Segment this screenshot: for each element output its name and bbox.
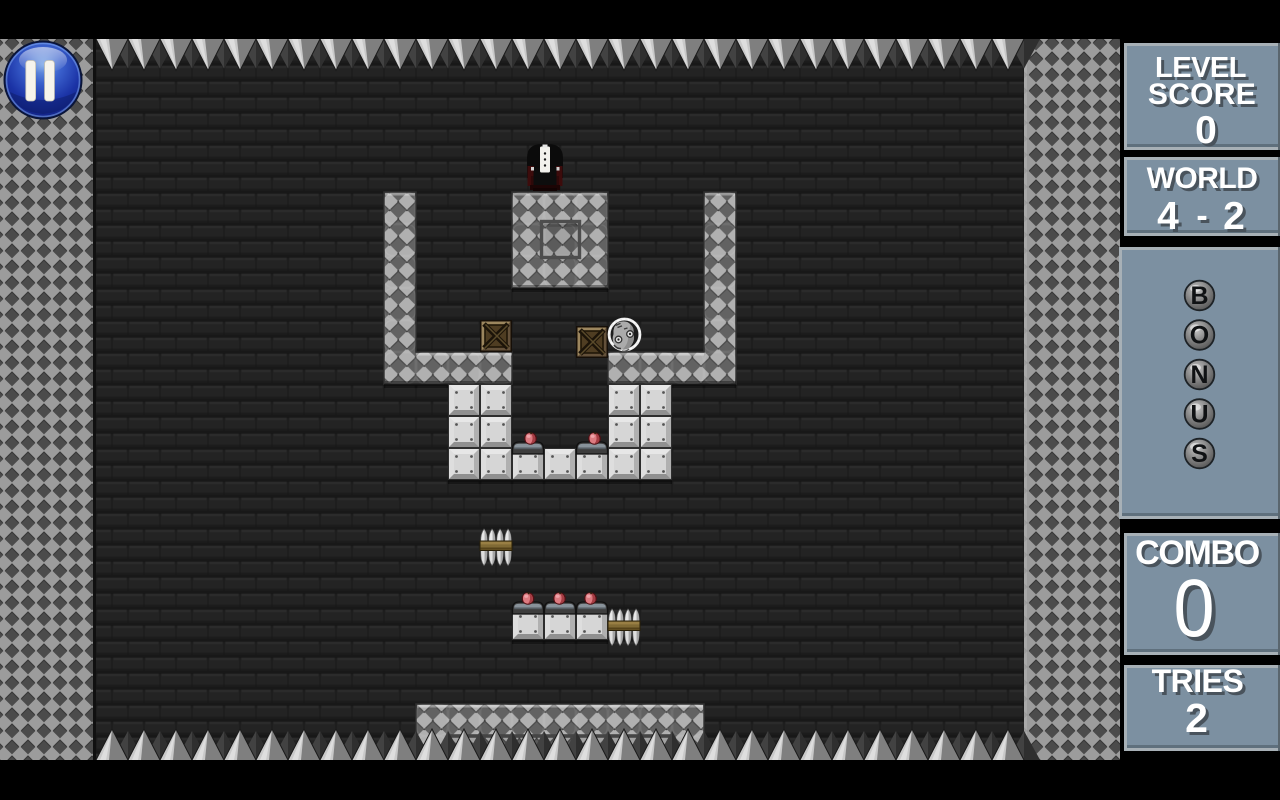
svg-text:O: O bbox=[1190, 322, 1209, 350]
svg-text:S: S bbox=[1191, 440, 1208, 468]
svg-text:0: 0 bbox=[1173, 561, 1214, 654]
svg-text:SCORE: SCORE bbox=[1148, 78, 1256, 111]
svg-text:U: U bbox=[1190, 401, 1208, 429]
svg-text:2: 2 bbox=[1223, 195, 1245, 238]
svg-text:4: 4 bbox=[1157, 195, 1179, 238]
svg-text:0: 0 bbox=[1195, 109, 1217, 152]
svg-text:-: - bbox=[1196, 197, 1207, 235]
svg-text:2: 2 bbox=[1185, 695, 1208, 741]
svg-text:TRIES: TRIES bbox=[1152, 663, 1244, 699]
svg-text:B: B bbox=[1190, 282, 1208, 310]
svg-text:N: N bbox=[1190, 361, 1208, 389]
svg-text:WORLD: WORLD bbox=[1147, 162, 1258, 195]
